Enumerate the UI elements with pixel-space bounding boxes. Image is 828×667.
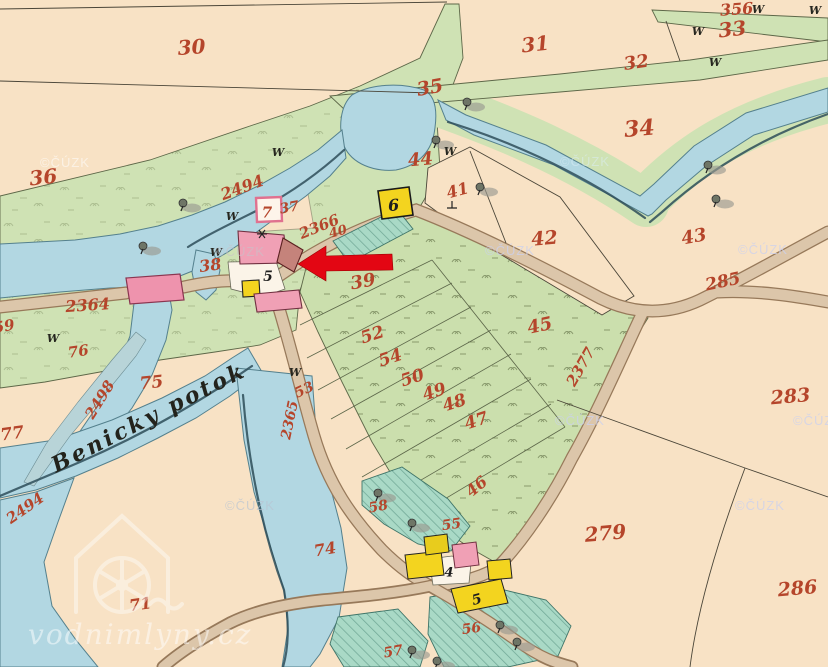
meadow-w-icon: W	[444, 145, 458, 158]
czuk-watermark: ©ČÚZK	[215, 244, 265, 259]
czuk-watermark: ©ČÚZK	[485, 243, 535, 258]
meadow-w-icon: W	[289, 366, 303, 379]
parcel-number-279: 279	[583, 519, 628, 547]
parcel-number-39: 39	[349, 269, 378, 294]
house-number-4: 4	[444, 566, 453, 581]
parcel-number-57: 57	[382, 642, 404, 661]
czuk-watermark: ©ČÚZK	[560, 154, 610, 169]
parcel-number-58: 58	[367, 497, 389, 516]
village-masonry-building	[452, 542, 479, 568]
czuk-watermark: ©ČÚZK	[225, 498, 275, 513]
meadow-w-icon: W	[752, 3, 766, 16]
parcel-number-34: 34	[623, 114, 656, 143]
parcel-number-44: 44	[407, 148, 434, 171]
parcel-number-32: 32	[622, 51, 650, 75]
czuk-watermark: ©ČÚZK	[735, 498, 785, 513]
czuk-watermark: ©ČÚZK	[738, 242, 788, 257]
parcel-number-56: 56	[461, 620, 483, 639]
parcel-number-75: 75	[139, 372, 165, 394]
cadastral-map-screenshot: WWWWWWWWWW 30313233356343536444142432852…	[0, 0, 828, 667]
parcel-number-37: 37	[278, 198, 300, 217]
czuk-watermark: ©ČÚZK	[40, 155, 90, 170]
house-number-5: 5	[263, 269, 273, 285]
village-wooden-building-a	[405, 551, 444, 579]
parcel-number-2364: 2364	[64, 294, 111, 316]
house-number-7-label: 7	[262, 203, 273, 221]
bridge	[126, 274, 184, 304]
czuk-watermark: ©ČÚZK	[555, 413, 605, 428]
village-wooden-building-b	[424, 534, 449, 555]
parcel-number-356: 356	[719, 0, 754, 20]
meadow-w-icon: W	[272, 146, 286, 159]
village-wooden-building-c	[487, 559, 512, 580]
meadow-w-icon: W	[226, 210, 240, 223]
parcel-number-30: 30	[177, 34, 207, 60]
parcel-number-55: 55	[441, 516, 463, 535]
meadow-w-icon: W	[47, 332, 61, 345]
cadastral-map: WWWWWWWWWW 30313233356343536444142432852…	[0, 0, 828, 667]
czuk-watermark: ©ČÚZK	[793, 413, 828, 428]
house-number-7: 7	[262, 203, 273, 221]
meadow-w-icon: W	[692, 25, 706, 38]
parcel-number-74: 74	[312, 538, 337, 561]
vodnimlyny-text: vodnimlyny.cz	[28, 618, 252, 651]
parcel-number-286: 286	[776, 576, 818, 601]
house-number-6: 6	[387, 195, 400, 215]
parcel-number-76: 76	[67, 341, 91, 362]
mill-lower-building	[254, 290, 302, 312]
meadow-w-icon: W	[709, 56, 723, 69]
parcel-number-43: 43	[680, 224, 708, 249]
parcel-number-77: 77	[0, 422, 26, 445]
parcel-number-31: 31	[520, 31, 550, 58]
meadow-w-icon: W	[809, 4, 823, 17]
parcel-number-35: 35	[415, 75, 445, 101]
parcel-number-283: 283	[769, 384, 811, 409]
